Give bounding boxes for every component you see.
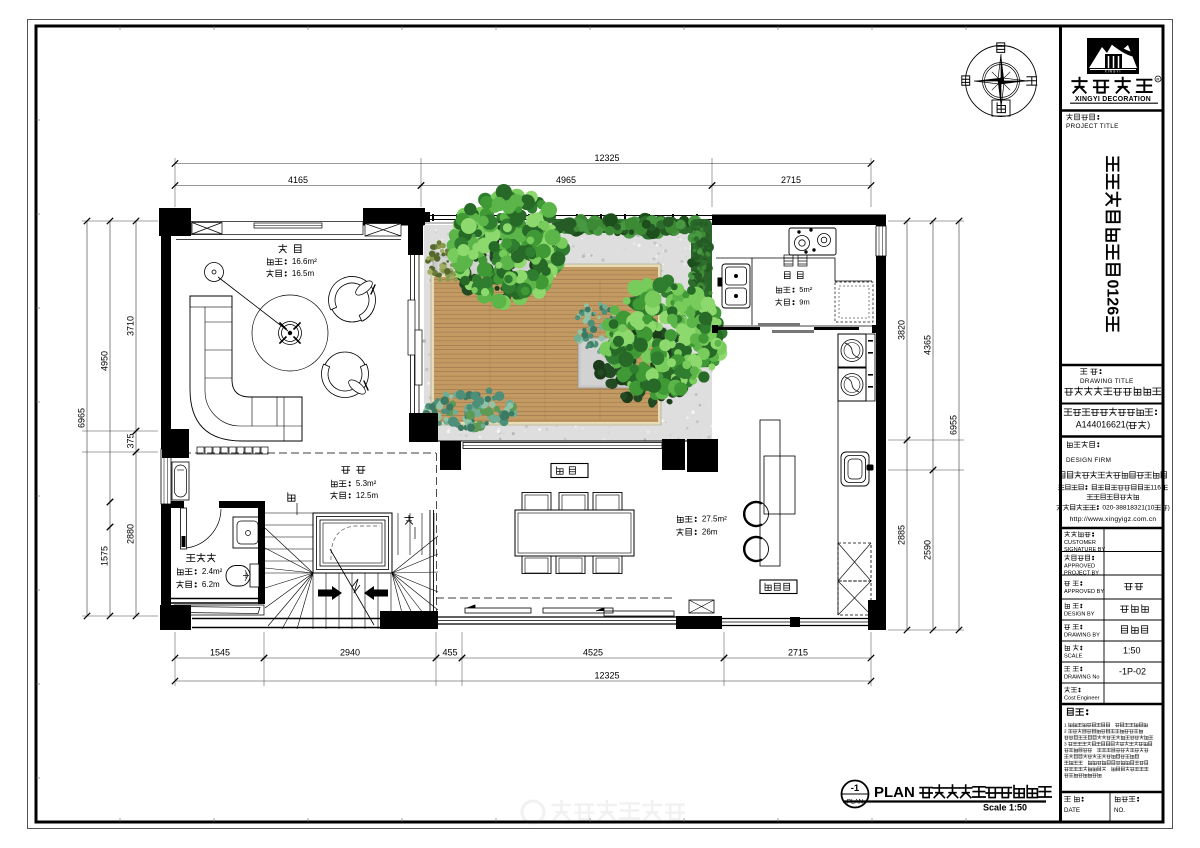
svg-text:4165: 4165 [288,175,308,185]
svg-text:116: 116 [1150,484,1161,491]
svg-text:3710: 3710 [126,316,136,336]
svg-text:SIGNATURE BY: SIGNATURE BY [1064,547,1106,553]
svg-text:16.6m²: 16.6m² [292,257,317,266]
svg-text:6955: 6955 [949,415,959,435]
svg-text:PROJECT BY: PROJECT BY [1064,570,1099,576]
svg-text:12.5m: 12.5m [356,491,379,500]
svg-text:020-38818321(10: 020-38818321(10 [1102,504,1154,511]
svg-text:PROJECT TITLE: PROJECT TITLE [1066,123,1119,130]
svg-text:2.4m²: 2.4m² [202,567,223,576]
svg-text:1:50: 1:50 [1123,646,1141,656]
svg-text:26m: 26m [702,528,718,537]
svg-text:12325: 12325 [594,153,619,163]
svg-text:2: 2 [1064,729,1067,734]
svg-text:2885: 2885 [897,525,907,545]
svg-text:4525: 4525 [583,648,603,658]
svg-text:2940: 2940 [340,648,360,658]
svg-text:XINGYI DECORATION: XINGYI DECORATION [1075,96,1151,103]
svg-text:0126: 0126 [1104,280,1121,316]
svg-text:DESIGN FIRM: DESIGN FIRM [1066,457,1111,464]
svg-text:-1P-02: -1P-02 [1119,667,1146,677]
svg-text:A144016621(: A144016621( [1076,420,1129,430]
svg-text:): ) [1168,504,1170,511]
svg-text:3: 3 [1064,741,1067,746]
svg-text:4365: 4365 [923,335,933,355]
svg-text:2715: 2715 [788,648,808,658]
svg-text:http://www.xingyigz.com.cn: http://www.xingyigz.com.cn [1070,516,1157,523]
svg-text:4950: 4950 [100,351,110,371]
svg-text:1575: 1575 [100,546,110,566]
svg-text:6965: 6965 [77,408,87,428]
svg-text:DATE: DATE [1064,807,1080,814]
svg-text:375: 375 [126,433,136,448]
svg-text:-1: -1 [851,783,860,794]
svg-text:1: 1 [1064,722,1067,727]
svg-text:CUSTOMER: CUSTOMER [1064,540,1096,546]
svg-text:Scale 1:50: Scale 1:50 [983,803,1027,813]
svg-text:6.2m: 6.2m [202,580,220,589]
svg-text:APPROVED: APPROVED [1064,564,1095,570]
svg-text:1545: 1545 [210,648,230,658]
svg-text:DRAWING BY: DRAWING BY [1064,633,1100,639]
svg-text:SCALE: SCALE [1064,654,1083,660]
svg-text:Cost Engineer: Cost Engineer [1064,696,1100,702]
svg-text:DRAWING No: DRAWING No [1064,675,1100,681]
svg-text:NO.: NO. [1114,807,1125,814]
svg-text:2880: 2880 [126,524,136,544]
svg-text:5m²: 5m² [799,285,812,294]
svg-text:PLAN: PLAN [874,784,915,801]
svg-text:455: 455 [442,648,457,658]
svg-text:DESIGN BY: DESIGN BY [1064,612,1095,618]
svg-text:9m: 9m [799,298,809,307]
svg-text:5.3m²: 5.3m² [356,479,377,488]
svg-text:3820: 3820 [897,320,907,340]
svg-text:12325: 12325 [594,671,619,681]
svg-text:27.5m²: 27.5m² [702,515,727,524]
svg-text:4965: 4965 [556,175,576,185]
svg-text:DRAWING TITLE: DRAWING TITLE [1080,378,1134,385]
svg-text:): ) [1147,420,1150,430]
svg-text:APPROVED BY: APPROVED BY [1064,589,1104,595]
svg-text:2590: 2590 [923,540,933,560]
svg-text:2715: 2715 [781,175,801,185]
svg-text:XINGYI: XINGYI [1105,70,1122,74]
svg-text:16.5m: 16.5m [292,269,315,278]
